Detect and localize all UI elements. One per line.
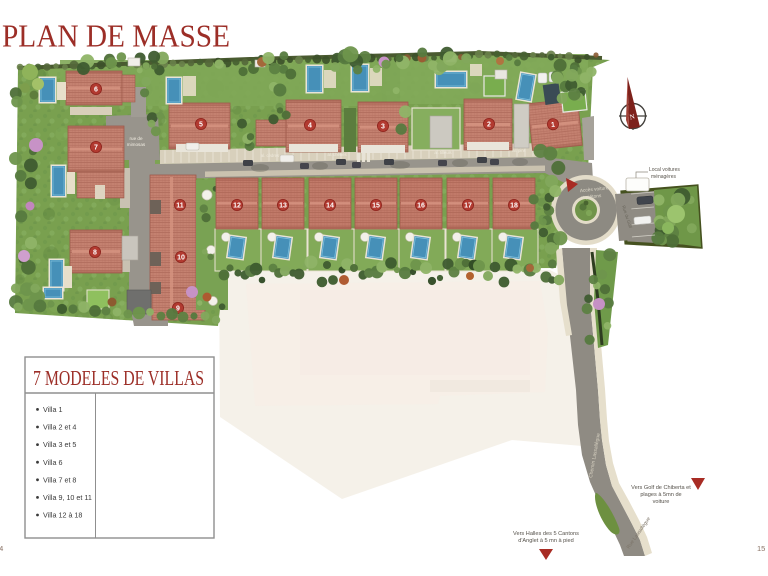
svg-text:14: 14: [326, 203, 334, 210]
svg-text:5: 5: [199, 122, 203, 129]
svg-text:Villa 9, 10 et 11: Villa 9, 10 et 11: [43, 493, 92, 502]
svg-text:17: 17: [464, 203, 472, 210]
svg-text:Local voitures: Local voitures: [649, 167, 680, 173]
svg-text:Villa 7 et 8: Villa 7 et 8: [43, 475, 76, 484]
svg-text:Vers Halles des 5 Cantons: Vers Halles des 5 Cantons: [513, 531, 579, 537]
svg-text:16: 16: [417, 203, 425, 210]
svg-text:Vers Golf de Chiberta et: Vers Golf de Chiberta et: [631, 485, 691, 491]
svg-text:voiture: voiture: [653, 499, 670, 505]
svg-text:al. chênes: al. chênes: [327, 152, 346, 157]
svg-text:18: 18: [510, 203, 518, 210]
svg-text:64: 64: [0, 544, 3, 553]
svg-text:al. cèdres: al. cèdres: [261, 153, 279, 158]
svg-text:Villa 6: Villa 6: [43, 458, 62, 467]
svg-text:10: 10: [177, 255, 185, 262]
svg-text:15: 15: [757, 544, 765, 553]
svg-text:2: 2: [487, 122, 491, 129]
svg-text:ménagères: ménagères: [651, 174, 677, 180]
svg-text:d'Anglet à 5 mn à pied: d'Anglet à 5 mn à pied: [518, 538, 574, 544]
svg-text:8: 8: [93, 250, 97, 257]
svg-text:plages à 5mn de: plages à 5mn de: [640, 492, 681, 498]
svg-text:15: 15: [372, 203, 380, 210]
svg-text:rue de: rue de: [129, 136, 142, 141]
svg-text:Villa 1: Villa 1: [43, 405, 62, 414]
svg-text:al. pins: al. pins: [512, 148, 525, 153]
svg-text:3: 3: [381, 124, 385, 131]
svg-text:Villa 12 à 18: Villa 12 à 18: [43, 511, 82, 520]
svg-text:7 MODELES DE VILLAS: 7 MODELES DE VILLAS: [33, 366, 204, 390]
svg-text:Villa 2 et 4: Villa 2 et 4: [43, 423, 76, 432]
svg-text:11: 11: [176, 203, 184, 210]
svg-text:12: 12: [233, 203, 241, 210]
svg-text:13: 13: [279, 203, 287, 210]
svg-text:PLAN DE MASSE: PLAN DE MASSE: [2, 19, 230, 54]
svg-text:al. tilleuls: al. tilleuls: [434, 150, 451, 155]
svg-text:6: 6: [94, 87, 98, 94]
svg-text:7: 7: [94, 145, 98, 152]
svg-text:mimosas: mimosas: [127, 142, 146, 147]
svg-text:Villa 3 et 5: Villa 3 et 5: [43, 440, 76, 449]
svg-text:4: 4: [308, 123, 312, 130]
